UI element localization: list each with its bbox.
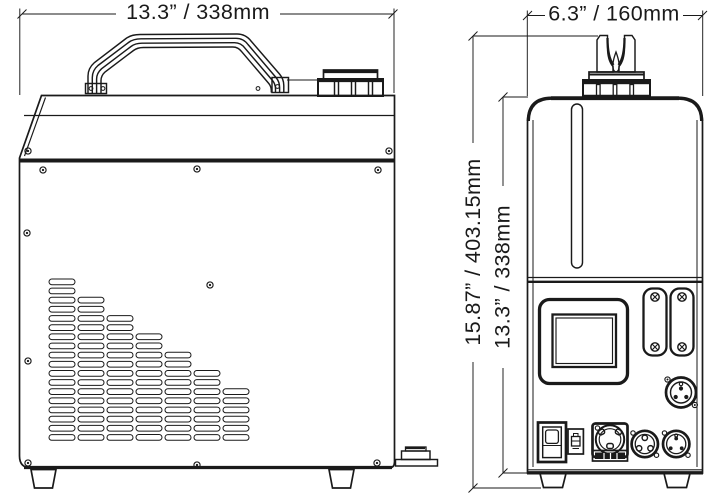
vent-slot (165, 398, 191, 404)
rear-view: 6.3” / 160mm (523, 2, 707, 488)
vent-slot (194, 407, 220, 413)
rear-body-outline (528, 98, 703, 474)
cover-plate (671, 289, 694, 356)
vent-slot (136, 389, 162, 395)
dmx-male-connector-icon (662, 431, 690, 458)
screw-icon (376, 462, 378, 464)
technical-drawing-page: 13.3” / 338mm (0, 0, 721, 499)
vent-slot (49, 316, 75, 322)
vent-slot (223, 389, 249, 395)
vent-slot (78, 398, 104, 404)
vent-slot (49, 407, 75, 413)
vent-slot (49, 343, 75, 349)
screw-icon (196, 168, 198, 170)
carry-handle (86, 34, 289, 94)
vent-slot (49, 306, 75, 312)
vent-slot (136, 343, 162, 349)
vent-slot (165, 416, 191, 422)
vent-slot (107, 343, 133, 349)
handle-pivot-icon (276, 85, 280, 89)
vent-slot (78, 316, 104, 322)
vent-slot (136, 416, 162, 422)
vent-slot (107, 416, 133, 422)
vent-slot (78, 334, 104, 340)
vent-slot (136, 361, 162, 367)
vent-slot (223, 416, 249, 422)
vent-slot (49, 279, 75, 285)
screw-icon (196, 464, 198, 466)
vent-slot (78, 325, 104, 331)
vent-slot (78, 407, 104, 413)
vent-slot (49, 425, 75, 431)
screw-icon (377, 169, 379, 171)
fog-machine-dimension-drawing: 13.3” / 338mm (0, 0, 721, 499)
side-body-outline (20, 96, 395, 469)
screw-icon (26, 232, 28, 234)
screw-icon (388, 150, 390, 152)
vent-slot (165, 361, 191, 367)
vent-slot (49, 361, 75, 367)
vent-slot (78, 297, 104, 303)
vent-slot (165, 407, 191, 413)
vent-slot (136, 435, 162, 441)
side-view: 13.3” / 338mm (18, 0, 438, 488)
screw-icon (652, 344, 657, 349)
vent-slot (107, 316, 133, 322)
vent-slot (49, 389, 75, 395)
screw-icon (652, 294, 657, 299)
vent-slot (78, 435, 104, 441)
vent-slot (107, 325, 133, 331)
screw-icon (42, 169, 44, 171)
vent-slot (194, 425, 220, 431)
cover-plate-screws (651, 293, 686, 351)
vent-slot (49, 334, 75, 340)
vent-slot (194, 398, 220, 404)
vent-slot (78, 343, 104, 349)
vent-slot (136, 425, 162, 431)
screw-icon (209, 284, 211, 286)
screw-icon (27, 360, 29, 362)
vent-slot (49, 380, 75, 386)
vent-slot (194, 416, 220, 422)
vent-slot (165, 380, 191, 386)
vent-slot (78, 425, 104, 431)
vent-slot (49, 325, 75, 331)
vent-slot (194, 371, 220, 377)
vent-slot (78, 352, 104, 358)
vent-slot (49, 288, 75, 294)
fluid-tank-cap-icon (318, 70, 383, 96)
vent-slot (107, 361, 133, 367)
vent-slot (78, 361, 104, 367)
height-dimensions: 15.87” / 403.15mm 13.3” / 338mm (461, 32, 598, 493)
vent-slot (223, 425, 249, 431)
vent-slot (49, 435, 75, 441)
vent-slot (107, 389, 133, 395)
vent-slot (194, 435, 220, 441)
vent-slot (78, 380, 104, 386)
dimension-label-rear-width: 6.3” / 160mm (548, 2, 679, 26)
vent-slot (107, 380, 133, 386)
vent-slot (107, 407, 133, 413)
vent-slot (107, 334, 133, 340)
vent-slot (223, 435, 249, 441)
screw-icon (27, 462, 29, 464)
top-corner-arc (528, 98, 551, 121)
foot-icon (31, 470, 56, 489)
sight-tube-icon (572, 104, 583, 268)
vent-slot (136, 334, 162, 340)
dmx-female-connector-icon (631, 431, 659, 458)
foot-icon (329, 470, 354, 489)
vent-slot (165, 389, 191, 395)
foot-icon (664, 474, 690, 488)
power-switch-icon (538, 423, 566, 463)
vent-slot (49, 352, 75, 358)
vent-slot (194, 389, 220, 395)
vent-slot (136, 352, 162, 358)
vent-slot (107, 398, 133, 404)
xlr-connector-icon (665, 377, 698, 408)
vent-grille (49, 279, 249, 440)
cover-plate (644, 289, 667, 356)
powercon-inlet-icon (593, 424, 628, 462)
foot-icon (540, 474, 566, 488)
screw-icon (679, 294, 684, 299)
vent-slot (165, 435, 191, 441)
vent-slot (107, 371, 133, 377)
vent-slot (165, 371, 191, 377)
vent-slot (165, 352, 191, 358)
lid-inner-slant (25, 98, 46, 157)
vent-slot (49, 371, 75, 377)
vent-slot (136, 407, 162, 413)
vent-slot (136, 380, 162, 386)
vent-slot (136, 371, 162, 377)
vent-slot (78, 416, 104, 422)
screw-icon (27, 150, 29, 152)
fuse-holder-icon (568, 429, 583, 454)
dimension-label-side-width: 13.3” / 338mm (126, 0, 270, 24)
display-window (540, 300, 628, 384)
vent-slot (107, 352, 133, 358)
screw-icon (679, 344, 684, 349)
vent-slot (78, 306, 104, 312)
handle-pivot-icon (256, 87, 260, 91)
vent-slot (136, 398, 162, 404)
side-panel-screws (24, 148, 392, 468)
vent-slot (78, 371, 104, 377)
vent-slot (49, 416, 75, 422)
vent-slot (49, 297, 75, 303)
dimension-label-total-height: 15.87” / 403.15mm (461, 158, 485, 345)
vent-slot (107, 425, 133, 431)
mounting-bracket-icon (396, 447, 438, 466)
top-corner-arc (679, 98, 702, 121)
vent-slot (49, 398, 75, 404)
vent-slot (194, 380, 220, 386)
vent-slot (223, 407, 249, 413)
vent-slot (165, 425, 191, 431)
vent-slot (107, 435, 133, 441)
dimension-label-body-height: 13.3” / 338mm (491, 205, 515, 349)
vent-slot (78, 389, 104, 395)
vent-slot (223, 398, 249, 404)
output-nozzle-icon (583, 36, 650, 98)
